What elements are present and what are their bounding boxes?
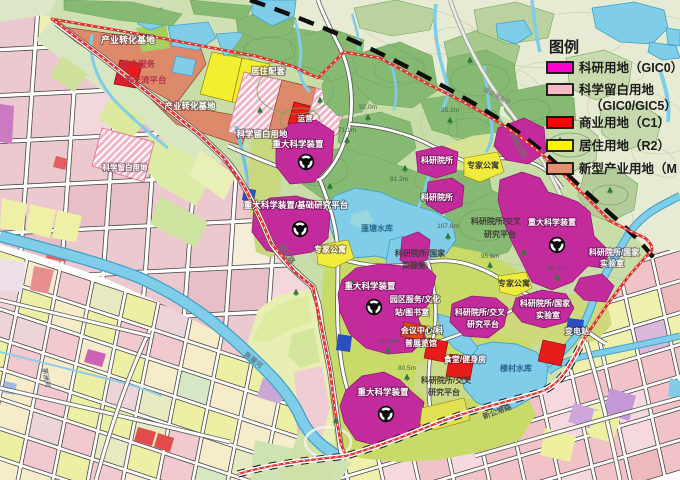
svg-text:研究平台: 研究平台	[428, 387, 460, 397]
svg-text:科研院所/国家: 科研院所/国家	[589, 247, 640, 257]
svg-text:园区服务/文化: 园区服务/文化	[390, 294, 440, 304]
svg-text:商业用地（C1）: 商业用地（C1）	[579, 115, 670, 130]
svg-text:重大科学装置: 重大科学装置	[357, 387, 409, 397]
svg-text:专家公寓: 专家公寓	[498, 278, 530, 288]
svg-text:食堂/健身房: 食堂/健身房	[444, 354, 486, 364]
svg-text:实验室: 实验室	[600, 258, 624, 268]
svg-text:实验室: 实验室	[536, 310, 560, 320]
svg-text:实验室: 实验室	[402, 260, 426, 270]
svg-text:35.2m: 35.2m	[441, 107, 459, 114]
svg-text:80.5m: 80.5m	[398, 365, 416, 372]
svg-text:科研院所/交叉: 科研院所/交叉	[455, 307, 506, 317]
svg-text:科研院所/交叉: 科研院所/交叉	[421, 375, 472, 385]
svg-text:楼村水库: 楼村水库	[500, 363, 532, 373]
svg-text:科研用地（GIC0）: 科研用地（GIC0）	[579, 60, 680, 75]
svg-text:科研院所/国家: 科研院所/国家	[395, 248, 446, 258]
svg-text:87.3m: 87.3m	[548, 265, 566, 272]
svg-text:产业转化基地: 产业转化基地	[164, 101, 216, 111]
svg-text:研究平台: 研究平台	[484, 229, 516, 239]
svg-text:重大科学装置/基础研究平台: 重大科学装置/基础研究平台	[244, 200, 349, 210]
svg-text:科研院所: 科研院所	[421, 192, 453, 202]
svg-text:95.6m: 95.6m	[481, 253, 499, 260]
svg-text:科学留白用地: 科学留白用地	[579, 82, 655, 97]
svg-text:科研院所/国家: 科研院所/国家	[520, 298, 571, 308]
svg-text:71.1m: 71.1m	[338, 127, 356, 134]
svg-text:专家公寓: 专家公寓	[314, 244, 346, 254]
svg-text:重大科学装置: 重大科学装置	[528, 217, 576, 227]
svg-text:专家公寓: 专家公寓	[467, 160, 499, 170]
svg-text:新型产业用地（M: 新型产业用地（M	[579, 161, 677, 176]
svg-text:学术交流平台: 学术交流平台	[115, 75, 167, 85]
svg-text:变电站: 变电站	[565, 326, 589, 336]
svg-text:居住用地（R2）: 居住用地（R2）	[579, 138, 670, 153]
svg-text:（GIC0/GIC5）: （GIC0/GIC5）	[590, 98, 677, 113]
svg-text:研究平台: 研究平台	[467, 319, 499, 329]
svg-text:132.6m: 132.6m	[377, 338, 399, 345]
svg-text:科研院所: 科研院所	[421, 155, 453, 165]
svg-text:居住配套: 居住配套	[250, 66, 286, 76]
svg-text:蓬塘水库: 蓬塘水库	[361, 223, 393, 233]
svg-text:运营: 运营	[298, 113, 313, 123]
svg-text:107.6m: 107.6m	[437, 223, 459, 230]
svg-text:81.2m: 81.2m	[390, 176, 408, 183]
svg-text:92.0m: 92.0m	[359, 104, 377, 111]
svg-text:重大科学装置: 重大科学装置	[272, 139, 324, 149]
svg-text:会议中心/科: 会议中心/科	[401, 325, 443, 335]
svg-text:重大科学装置: 重大科学装置	[344, 281, 396, 291]
svg-text:科学留白用地: 科学留白用地	[103, 162, 148, 172]
svg-text:产业转化基地: 产业转化基地	[101, 34, 155, 45]
svg-text:综合服务: 综合服务	[121, 59, 156, 69]
svg-text:科研院所/交叉: 科研院所/交叉	[471, 216, 522, 226]
svg-text:普展览馆: 普展览馆	[405, 338, 437, 348]
svg-text:图例: 图例	[549, 38, 579, 56]
svg-text:站/图书室: 站/图书室	[395, 307, 429, 317]
svg-text:科学留白用地: 科学留白用地	[236, 129, 288, 139]
